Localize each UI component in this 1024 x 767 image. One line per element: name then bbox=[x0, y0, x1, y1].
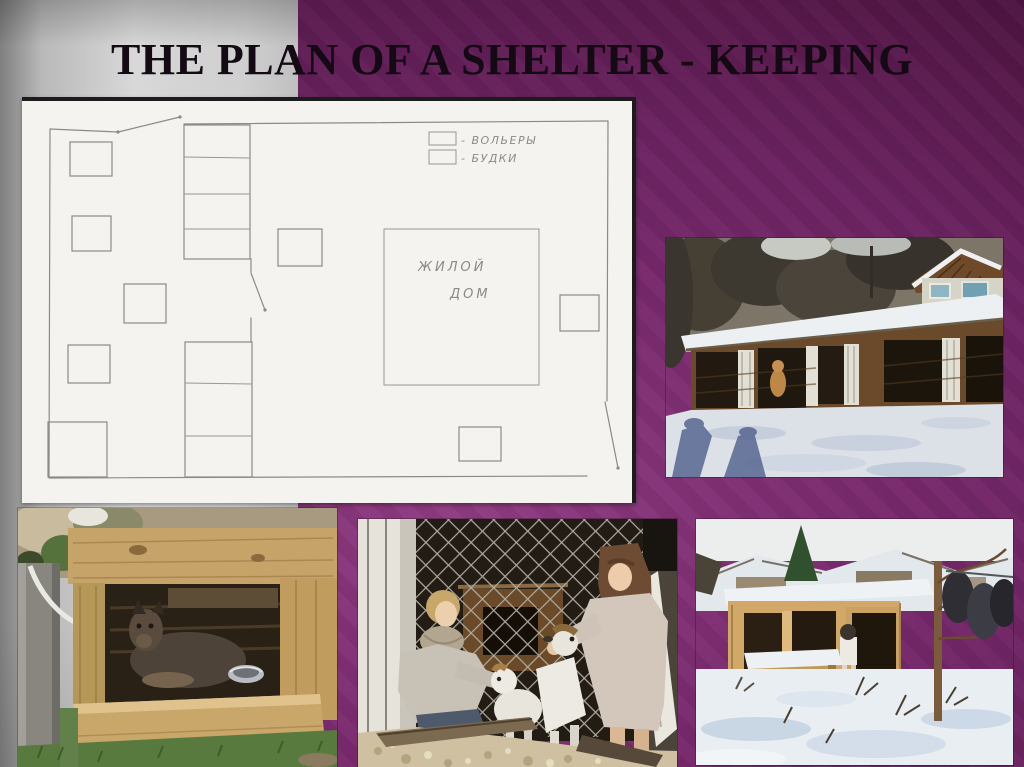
slide-title: THE PLAN OF A SHELTER - KEEPING bbox=[0, 34, 1024, 85]
dog-in-doorway bbox=[770, 369, 786, 397]
house-label-line2: ДОМ bbox=[449, 287, 491, 302]
kennel-box bbox=[68, 528, 337, 720]
plan-kennel-squares bbox=[68, 142, 599, 461]
snow-ground bbox=[696, 669, 1013, 765]
plan-boundary-fence bbox=[49, 115, 620, 478]
house-label-line1: ЖИЛОЙ bbox=[417, 259, 486, 275]
food-bowl bbox=[228, 665, 264, 683]
shelter-plan-drawing: ЖИЛОЙ ДОМ - ВОЛЬЕРЫ - БУДКИ bbox=[22, 97, 636, 503]
plan-enclosure-strip-bottom bbox=[185, 342, 252, 477]
photo-dog-in-kennel bbox=[18, 508, 337, 767]
plan-enclosure-corner bbox=[48, 422, 107, 477]
legend-enclosures-label: - ВОЛЬЕРЫ bbox=[461, 134, 537, 147]
plan-house: ЖИЛОЙ ДОМ bbox=[384, 229, 539, 385]
photo-girls-with-dogs bbox=[358, 519, 677, 767]
presentation-slide: THE PLAN OF A SHELTER - KEEPING bbox=[0, 0, 1024, 767]
snow-ground bbox=[666, 404, 1003, 477]
plan-enclosure-strip-top bbox=[184, 125, 267, 342]
plan-svg: ЖИЛОЙ ДОМ - ВОЛЬЕРЫ - БУДКИ bbox=[22, 101, 632, 503]
photo-winter-yard-shelter bbox=[696, 519, 1013, 765]
metal-post bbox=[18, 563, 60, 767]
sky bbox=[696, 519, 1013, 561]
plan-legend: - ВОЛЬЕРЫ - БУДКИ bbox=[429, 132, 537, 165]
legend-kennels-label: - БУДКИ bbox=[461, 152, 518, 165]
photo-winter-shelter-row bbox=[666, 238, 1003, 477]
